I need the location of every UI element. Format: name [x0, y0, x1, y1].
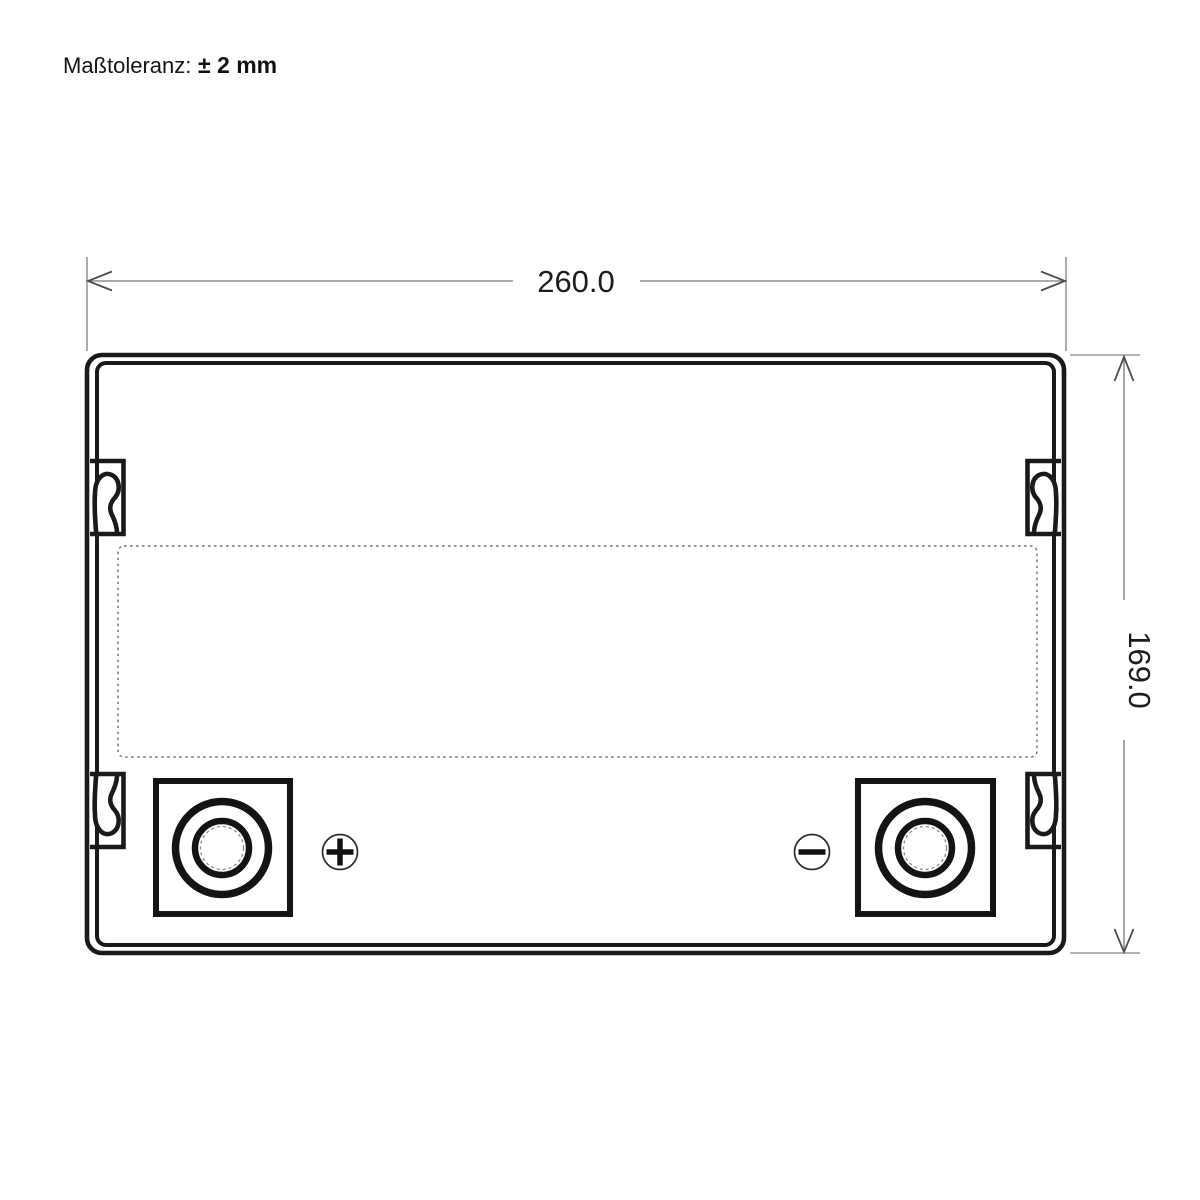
plus-icon — [323, 835, 358, 870]
terminal-negative — [858, 781, 993, 914]
height-dimension: 169.0 — [1070, 355, 1157, 953]
height-dimension-text: 169.0 — [1122, 631, 1157, 709]
battery-technical-drawing: Maßtoleranz: ± 2 mm 260.0 169.0 — [0, 0, 1200, 1200]
width-dimension-text: 260.0 — [537, 264, 615, 299]
tolerance-value: ± 2 mm — [198, 52, 277, 78]
width-dimension: 260.0 — [87, 257, 1066, 351]
drawing-canvas: Maßtoleranz: ± 2 mm 260.0 169.0 — [0, 0, 1200, 1200]
tolerance-label: Maßtoleranz: — [63, 53, 191, 78]
terminal-positive — [156, 781, 290, 914]
